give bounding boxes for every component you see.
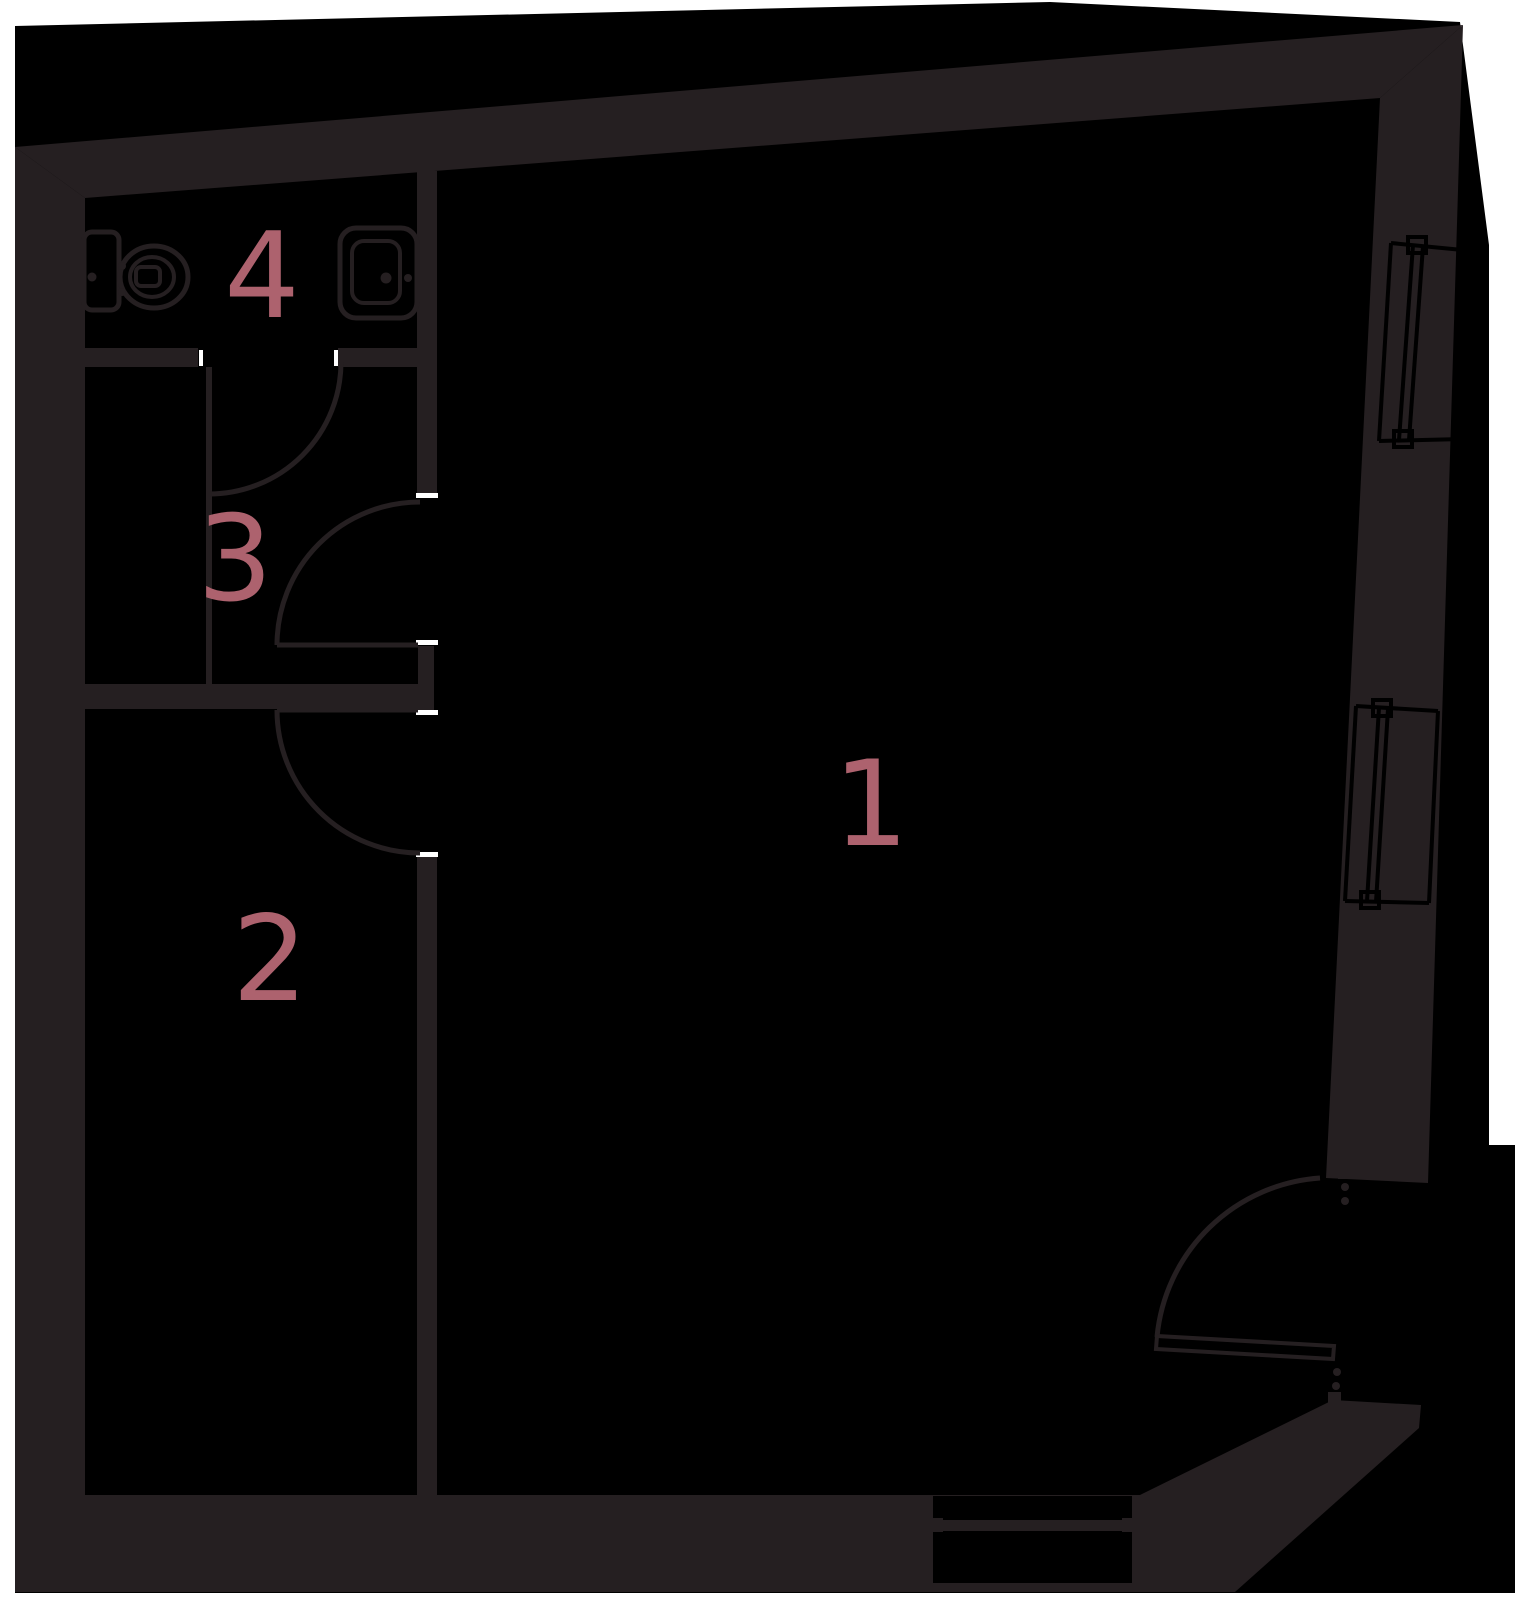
interior-wall-room4-left [85,348,198,367]
door-jamb-dot [1341,1183,1349,1191]
door-jamb-dot [1341,1197,1349,1205]
toilet-bolt-dot [118,262,126,270]
door-hinge-dot [1332,1382,1340,1390]
floor-plan-page: 1 2 3 4 [0,0,1515,1622]
toilet-bolt-dot [118,288,126,296]
door-jamb-tick [199,350,203,366]
interior-wall-vertical-middle-cap [418,646,434,710]
door-jamb-tick [416,493,438,498]
interior-wall-room3-room2 [85,684,420,709]
door-jamb-block [1338,1166,1351,1179]
door-hinge-dot [1333,1368,1341,1376]
interior-wall-vertical-upper [417,171,437,497]
door-jamb-tick [334,350,338,366]
door-jamb-tick [416,710,438,715]
window-frame-line [1379,439,1463,441]
window-opening [933,1496,1132,1583]
washbasin-faucet-dot [381,273,392,284]
interior-wall-room4-right [338,348,420,367]
window-end-block [933,1518,943,1532]
washbasin-drain-dot [404,274,412,282]
toilet-supply-dot [88,273,97,282]
window-bottom [933,1496,1132,1583]
window-frame-line [1345,901,1429,903]
room-label-2: 2 [232,891,308,1029]
interior-wall-vertical-lower [417,857,437,1495]
window-end-block [1122,1518,1132,1532]
window-glazing-line [943,1520,1127,1531]
door-jamb-tick [416,640,438,645]
door-jamb-block [1328,1392,1341,1405]
room-label-1: 1 [833,736,909,874]
room-label-4: 4 [224,208,300,346]
floor-plan-svg: 1 2 3 4 [0,0,1515,1622]
room-label-3: 3 [197,491,273,629]
